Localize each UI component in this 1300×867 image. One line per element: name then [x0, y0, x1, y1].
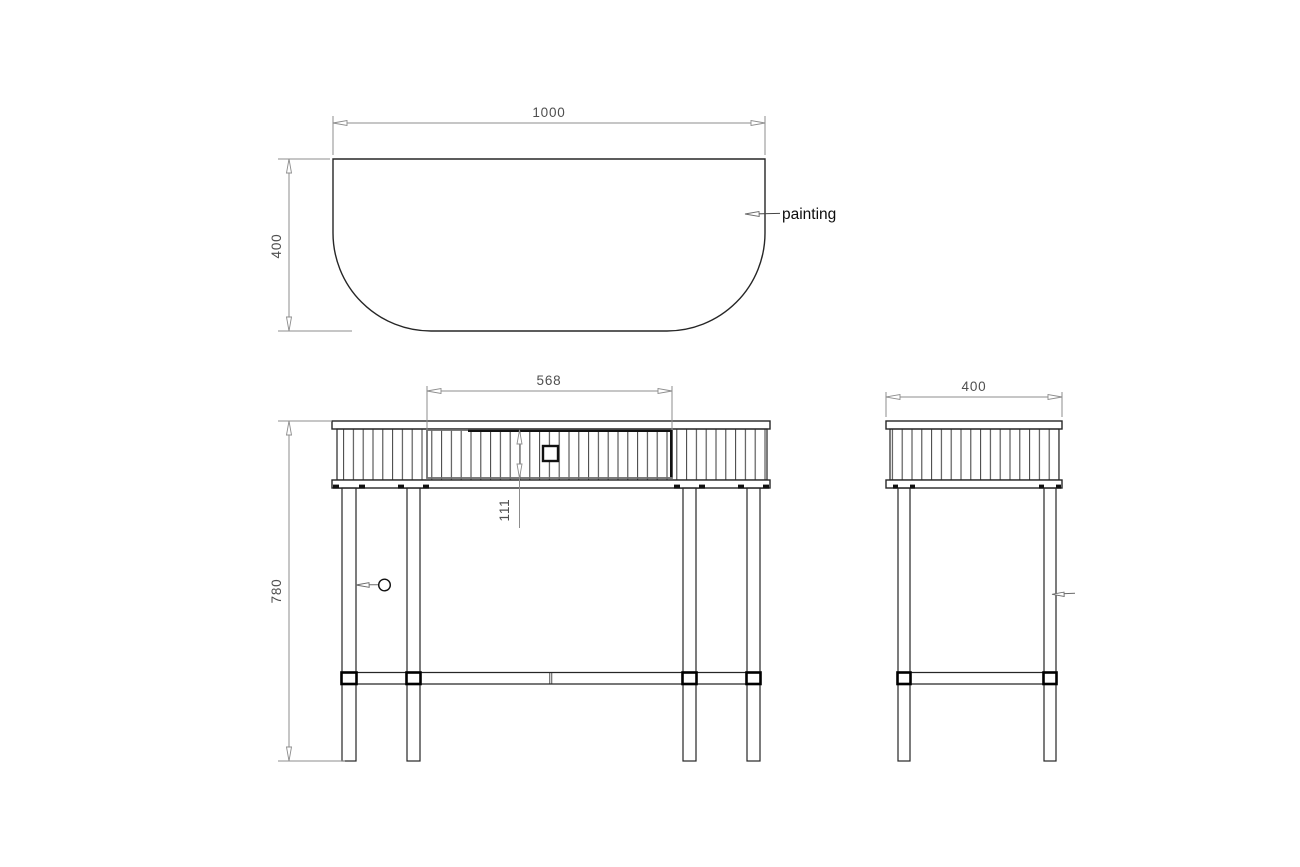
technical-drawing-svg: 1000 400 painting: [0, 0, 1300, 867]
arrowhead-right: [658, 389, 672, 394]
arrowhead-down: [287, 747, 292, 761]
stretcher-joint: [407, 673, 421, 685]
stretcher-joint: [1044, 673, 1057, 685]
arrowhead-left: [333, 121, 347, 126]
dimension-label-drawer-height: 111: [497, 499, 512, 522]
front-leg-1: [342, 488, 356, 761]
front-stretcher: [342, 673, 761, 685]
front-leg-4: [747, 488, 760, 761]
side-leg-2: [1044, 488, 1056, 761]
stretcher-joint: [683, 673, 697, 685]
arrowhead-left: [886, 395, 900, 400]
dimension-overall-height: [278, 421, 345, 761]
callout-circle: [379, 579, 391, 591]
dimension-label-side-depth: 400: [962, 379, 987, 394]
leg-callout: [356, 579, 390, 591]
arrowhead-right: [751, 121, 765, 126]
dimension-top-width: [333, 116, 765, 155]
dimension-side-depth: [886, 392, 1062, 417]
side-view: 400: [886, 379, 1075, 761]
stretcher-joint: [898, 673, 911, 685]
top-view-outline: [333, 159, 765, 331]
painting-label: painting: [782, 206, 836, 223]
side-stretcher: [898, 673, 1057, 685]
front-leg-2: [407, 488, 420, 761]
stretcher-joint: [342, 673, 357, 685]
dimension-label-drawer-width: 568: [537, 373, 562, 388]
side-leg-1: [898, 488, 910, 761]
arrowhead-down: [287, 317, 292, 331]
top-view: 1000 400 painting: [269, 105, 836, 331]
arrowhead-up: [287, 421, 292, 435]
arrowhead-right: [1048, 395, 1062, 400]
stretcher-joint: [747, 673, 761, 685]
front-tabletop: [332, 421, 770, 429]
front-view: 568 111 780: [269, 373, 770, 761]
dimension-label-top-depth: 400: [269, 234, 284, 259]
drawer-knob: [543, 446, 558, 461]
drawing-canvas: 1000 400 painting: [0, 0, 1300, 867]
side-apron-fluted: [890, 429, 1059, 480]
side-tabletop: [886, 421, 1062, 429]
arrowhead-left: [356, 583, 369, 588]
arrowhead-left: [427, 389, 441, 394]
dimension-label-top-width: 1000: [532, 105, 565, 120]
front-leg-3: [683, 488, 696, 761]
dimension-label-overall-height: 780: [269, 579, 284, 604]
arrowhead-up: [287, 159, 292, 173]
